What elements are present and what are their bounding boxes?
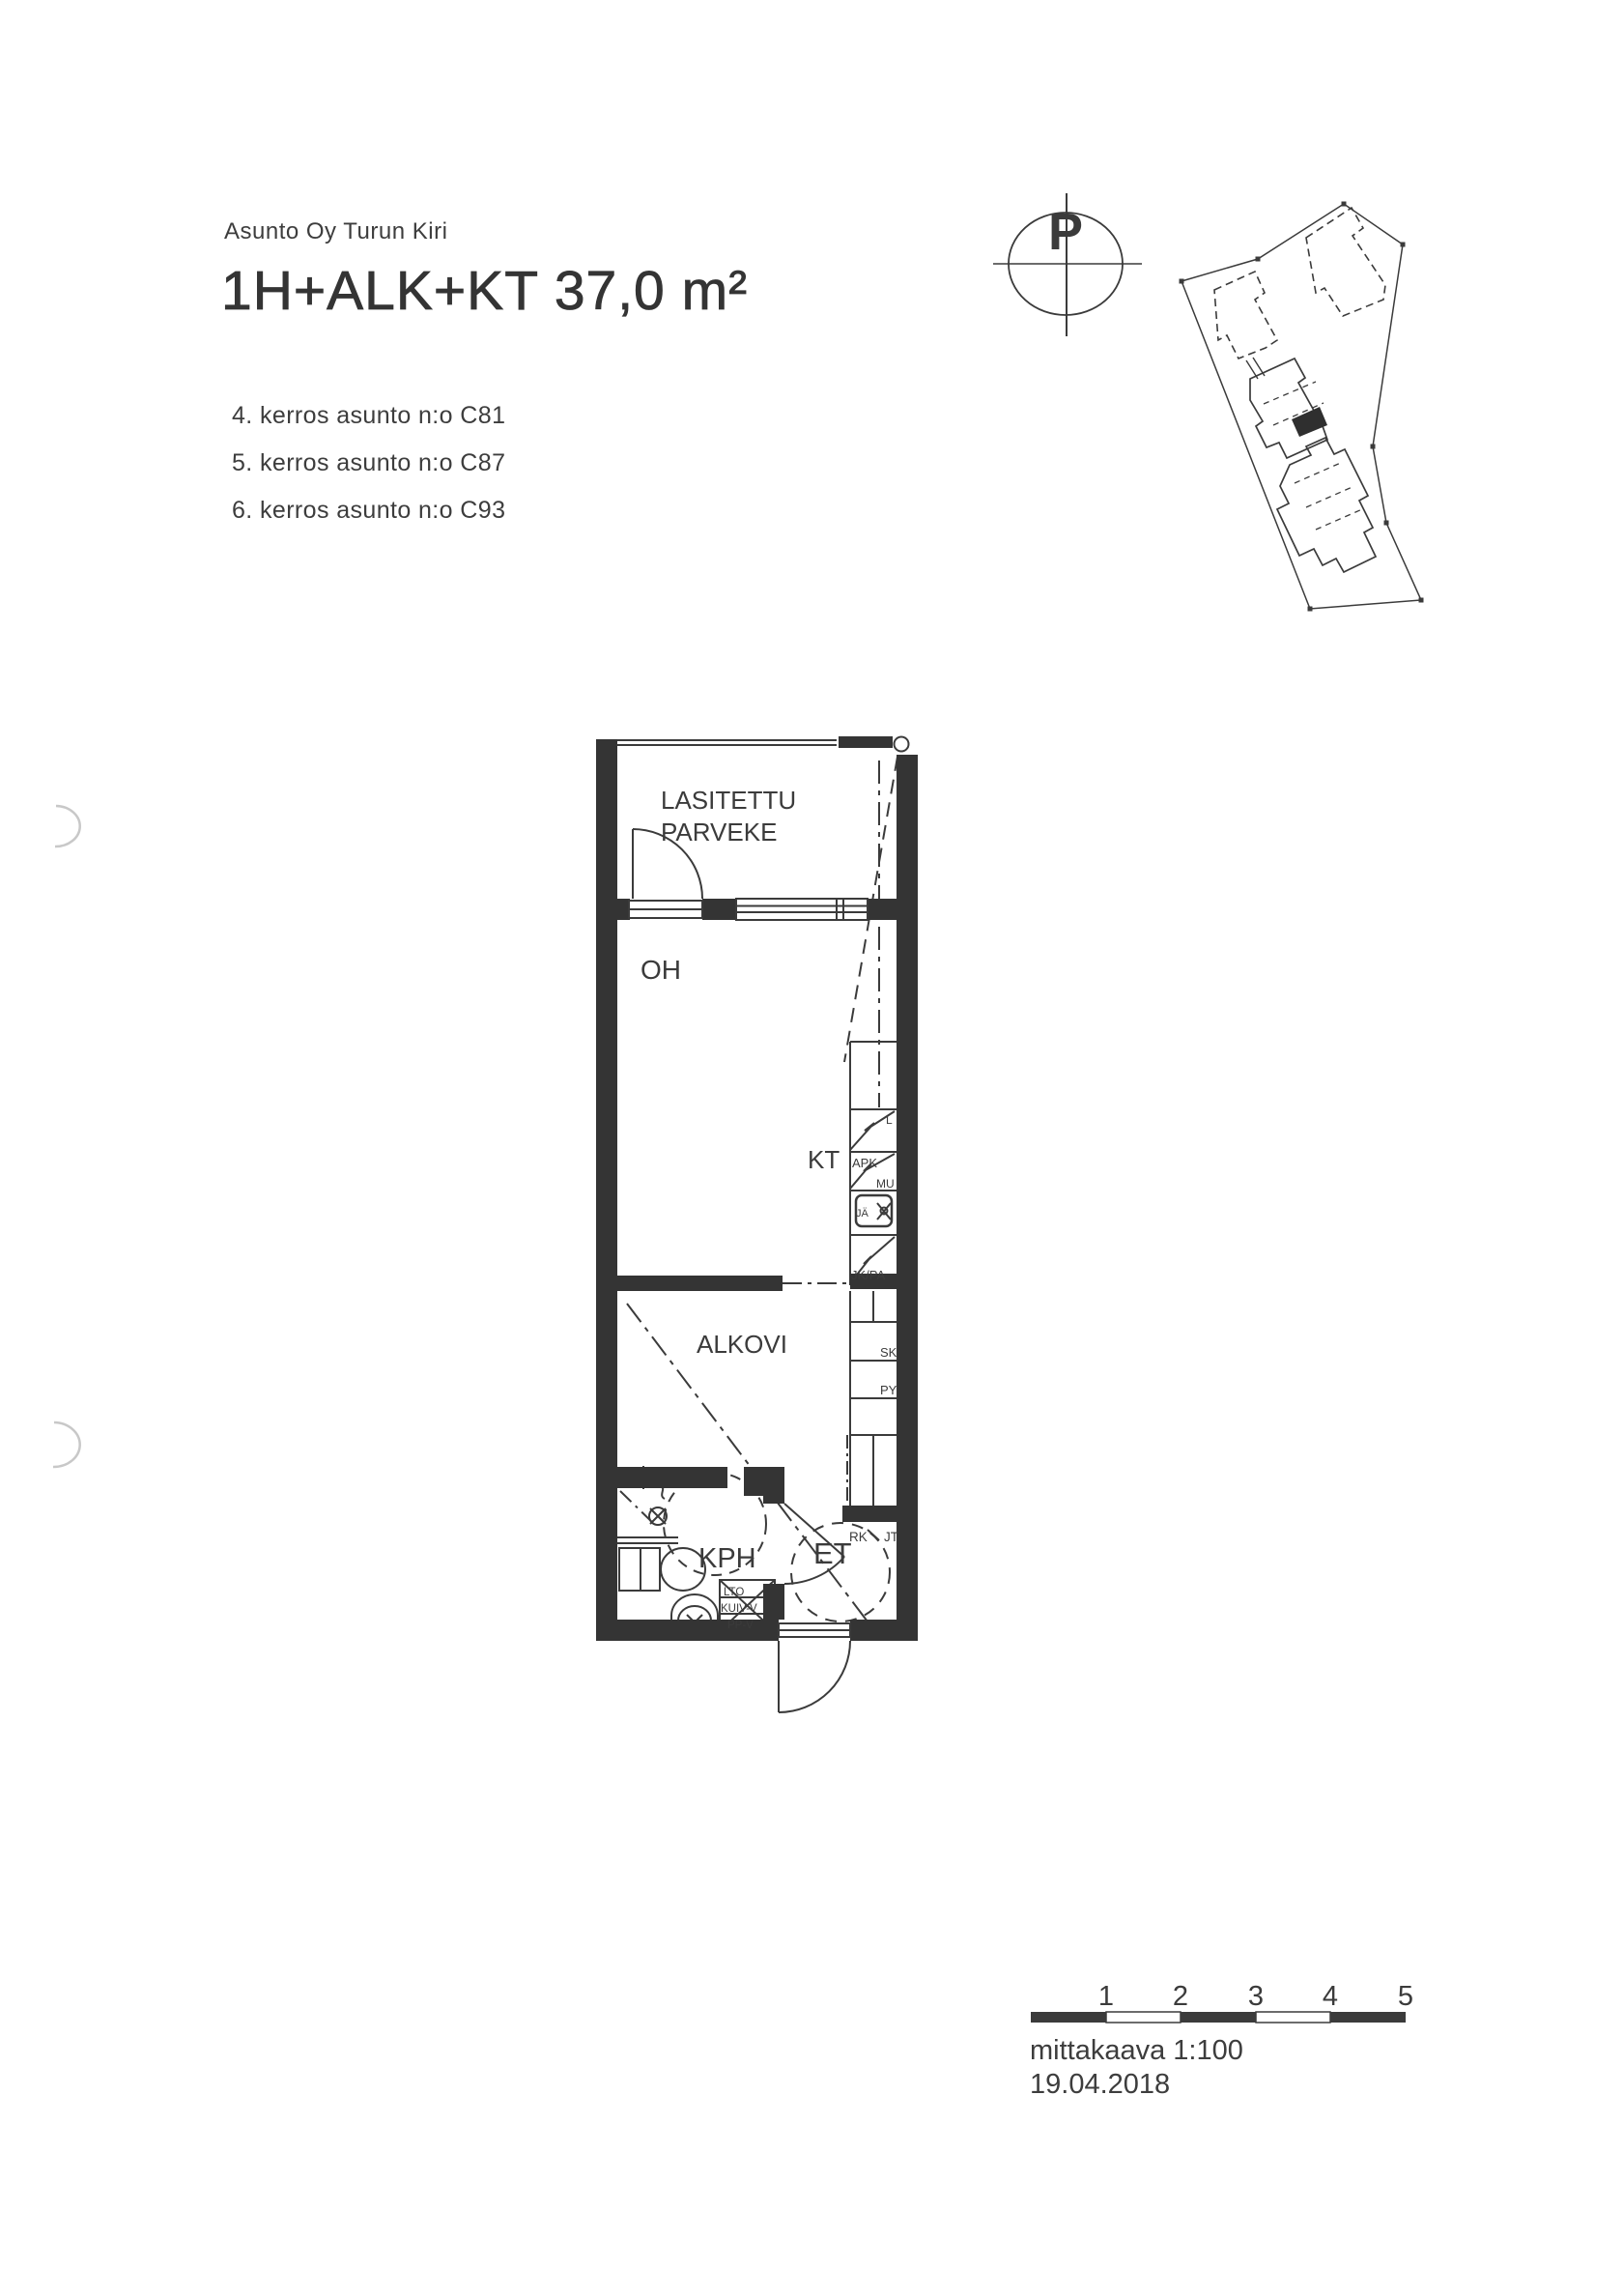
wall-alcove-divider xyxy=(617,1276,783,1291)
alcove-label: ALKOVI xyxy=(697,1330,787,1359)
rk-label: RK xyxy=(849,1530,868,1544)
stove-label: L xyxy=(886,1113,893,1127)
bathroom-shelf xyxy=(617,1537,678,1543)
walls xyxy=(596,736,918,1641)
scale-tick-5: 5 xyxy=(1398,1981,1413,2012)
page-title: 1H+ALK+KT 37,0 m² xyxy=(221,259,748,323)
scale-bar: 1 2 3 4 5 xyxy=(1005,1969,1430,2037)
wall-right xyxy=(897,755,918,1641)
fridge-label: JK/PA xyxy=(851,1268,885,1282)
entry-door xyxy=(779,1623,850,1712)
wardrobe-end-bar xyxy=(842,1506,897,1522)
apartment-line-2: 5. kerros asunto n:o C87 xyxy=(232,449,505,477)
floor-plan: LASITETTU PARVEKE OH KT ALKOVI KPH ET L … xyxy=(570,705,937,1749)
jt-label: JT xyxy=(884,1530,898,1544)
scale-tick-1: 1 xyxy=(1098,1981,1114,2012)
site-boundary-nodes xyxy=(1180,202,1424,612)
balcony-corner-post xyxy=(895,737,909,752)
scale-tick-2: 2 xyxy=(1173,1981,1188,2012)
dryer-label: KUIV-V xyxy=(721,1603,757,1615)
living-room-label: OH xyxy=(641,955,681,985)
scan-artifact-bottom xyxy=(25,1411,122,1498)
company-name: Asunto Oy Turun Kiri xyxy=(224,218,447,245)
scale-tick-4: 4 xyxy=(1323,1981,1338,2012)
hall-label: ET xyxy=(813,1536,852,1570)
dishwasher-label: APK xyxy=(852,1156,877,1170)
balcony-label-line2: PARVEKE xyxy=(661,818,777,847)
scale-tick-3: 3 xyxy=(1248,1981,1264,2012)
site-target-apartment xyxy=(1292,407,1327,437)
site-building-lower xyxy=(1277,438,1376,572)
wall-bathroom-top xyxy=(596,1467,727,1488)
wall-left xyxy=(596,739,617,1641)
hall-wardrobes xyxy=(847,1291,897,1506)
date-text: 19.04.2018 xyxy=(1030,2069,1170,2101)
washer-label: PP-V xyxy=(727,1620,754,1631)
scale-bar-segments xyxy=(1031,2012,1406,2023)
north-compass: P xyxy=(976,179,1169,353)
apartment-line-1: 4. kerros asunto n:o C81 xyxy=(232,402,505,430)
scale-bar-ticks: 1 2 3 4 5 xyxy=(1098,1981,1413,2012)
kitchen-label: KT xyxy=(808,1145,840,1174)
scanned-floorplan-page: Asunto Oy Turun Kiri 1H+ALK+KT 37,0 m² 4… xyxy=(0,0,1623,2296)
wall-bottom-right xyxy=(850,1620,918,1641)
lto-label: LTO xyxy=(724,1587,744,1598)
scale-text: mittakaava 1:100 xyxy=(1030,2035,1243,2067)
site-plan xyxy=(1164,188,1435,623)
balcony-rail xyxy=(617,740,837,745)
balcony-label-line1: LASITETTU xyxy=(661,786,796,815)
compass-north-letter: P xyxy=(1048,203,1083,261)
living-room-window xyxy=(736,899,868,920)
site-boundary xyxy=(1182,204,1421,609)
microwave-label: MU xyxy=(876,1177,895,1191)
cleaning-closet-label: SK xyxy=(880,1345,897,1360)
site-building-target-block xyxy=(1250,359,1327,458)
scan-artifact-top xyxy=(29,794,116,872)
site-building-upper-left xyxy=(1214,272,1277,359)
toilet xyxy=(619,1548,705,1591)
laundry-label: PY xyxy=(880,1383,897,1397)
apartment-line-3: 6. kerros asunto n:o C93 xyxy=(232,497,505,525)
balcony-top-bar xyxy=(839,736,893,748)
sink-label: JÄ xyxy=(856,1208,869,1220)
bathroom-label: KPH xyxy=(698,1543,756,1574)
